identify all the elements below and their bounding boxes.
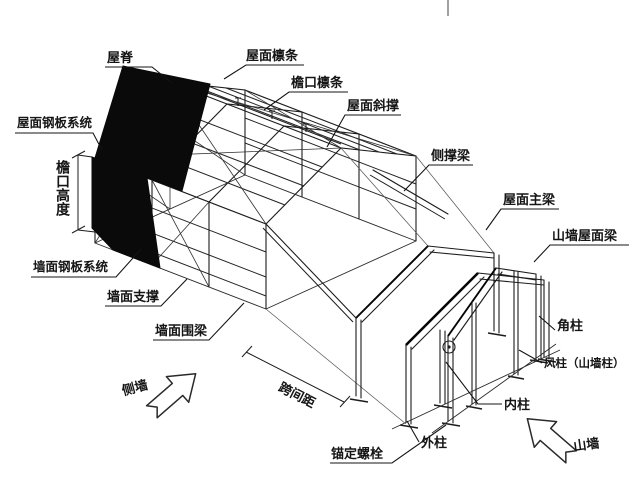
label-wall-panel-system: 墙面钢板系统 — [33, 259, 109, 274]
label-wall-brace: 墙面支撑 — [107, 289, 159, 304]
label-eave-height: 檐口高度 — [55, 159, 71, 217]
label-wall-girt: 墙面围梁 — [155, 323, 208, 338]
side-wall-arrow-icon — [141, 361, 207, 425]
structure-drawing: 屋脊 屋面檩条 檐口檩条 屋面斜撑 侧撑梁 屋面主梁 山墙屋面梁 角柱 风柱（山… — [0, 0, 640, 480]
rigid-frame-2 — [400, 273, 556, 428]
gable-wall-arrow-icon — [516, 406, 582, 470]
label-corner-column: 角柱 — [557, 318, 583, 333]
diagram-canvas: 屋脊 屋面檩条 檐口檩条 屋面斜撑 侧撑梁 屋面主梁 山墙屋面梁 角柱 风柱（山… — [0, 0, 640, 480]
label-anchor-bolt: 锚定螺栓 — [331, 446, 383, 461]
label-roof-panel-system: 屋面钢板系统 — [17, 115, 93, 130]
label-roof-purlin: 屋面檩条 — [246, 48, 299, 63]
label-side-wall: 侧墙 — [120, 377, 149, 398]
label-side-support-beam: 侧撑梁 — [431, 148, 471, 163]
label-inner-column: 内柱 — [504, 397, 530, 412]
label-gable-roof-beam: 山墙屋面梁 — [552, 228, 618, 243]
label-roof-main-beam: 屋面主梁 — [503, 192, 556, 207]
label-eave-purlin: 檐口檩条 — [291, 75, 344, 90]
label-wind-column: 风柱（山墙柱） — [544, 356, 625, 370]
label-gable-wall: 山墙 — [572, 435, 600, 453]
label-bay-spacing: 跨间距 — [276, 379, 318, 410]
label-roof-brace: 屋面斜撑 — [347, 98, 399, 113]
label-outer-column: 外柱 — [420, 435, 447, 450]
label-ridge: 屋脊 — [107, 50, 134, 65]
